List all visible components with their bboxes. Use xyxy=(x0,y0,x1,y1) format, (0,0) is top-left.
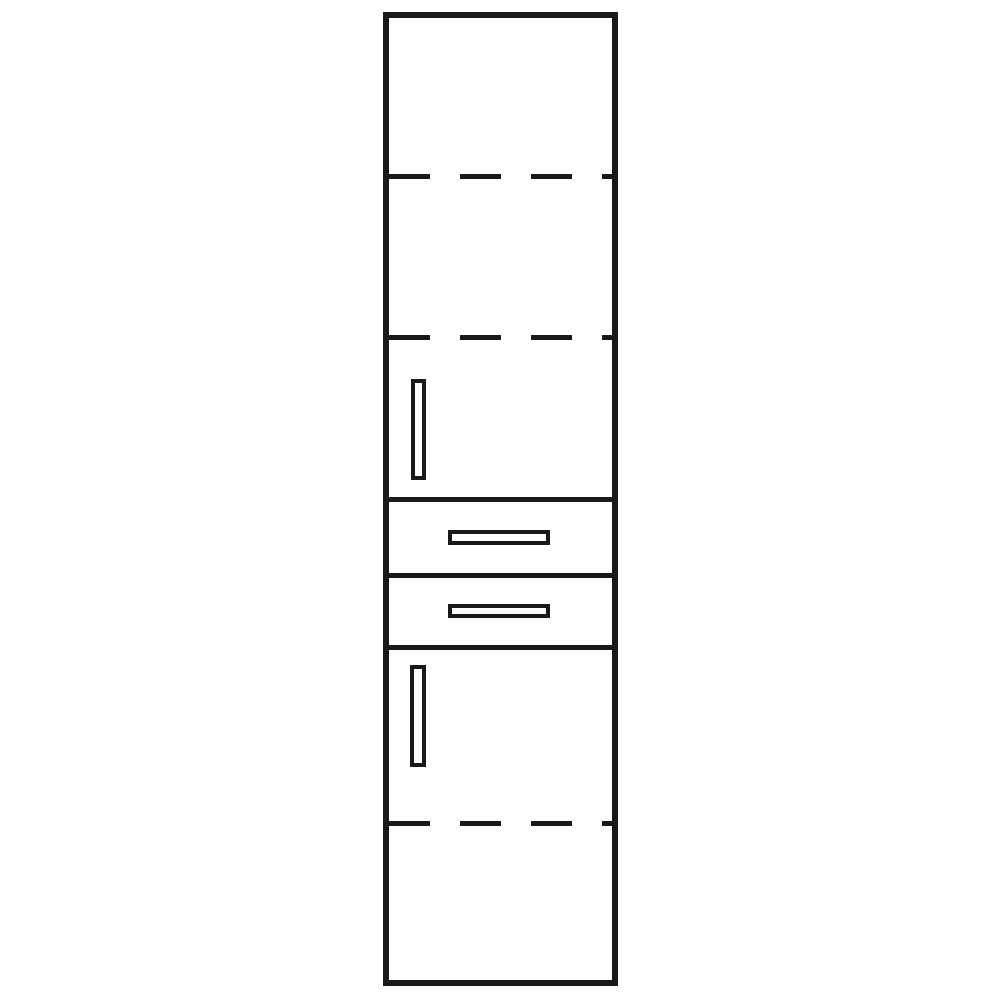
drawer-1-handle xyxy=(448,530,550,545)
drawer-2-handle xyxy=(448,604,550,618)
divider-below-drawer-2 xyxy=(389,645,612,650)
shelf-line-1 xyxy=(389,174,612,179)
divider-between-drawers xyxy=(389,573,612,578)
shelf-line-2 xyxy=(389,335,612,340)
lower-door-handle xyxy=(410,665,426,767)
shelf-line-3 xyxy=(389,821,612,826)
schematic-canvas xyxy=(0,0,1000,1000)
divider-above-drawer-1 xyxy=(389,497,612,502)
upper-door-handle xyxy=(411,379,426,480)
cabinet-outline xyxy=(383,12,618,986)
